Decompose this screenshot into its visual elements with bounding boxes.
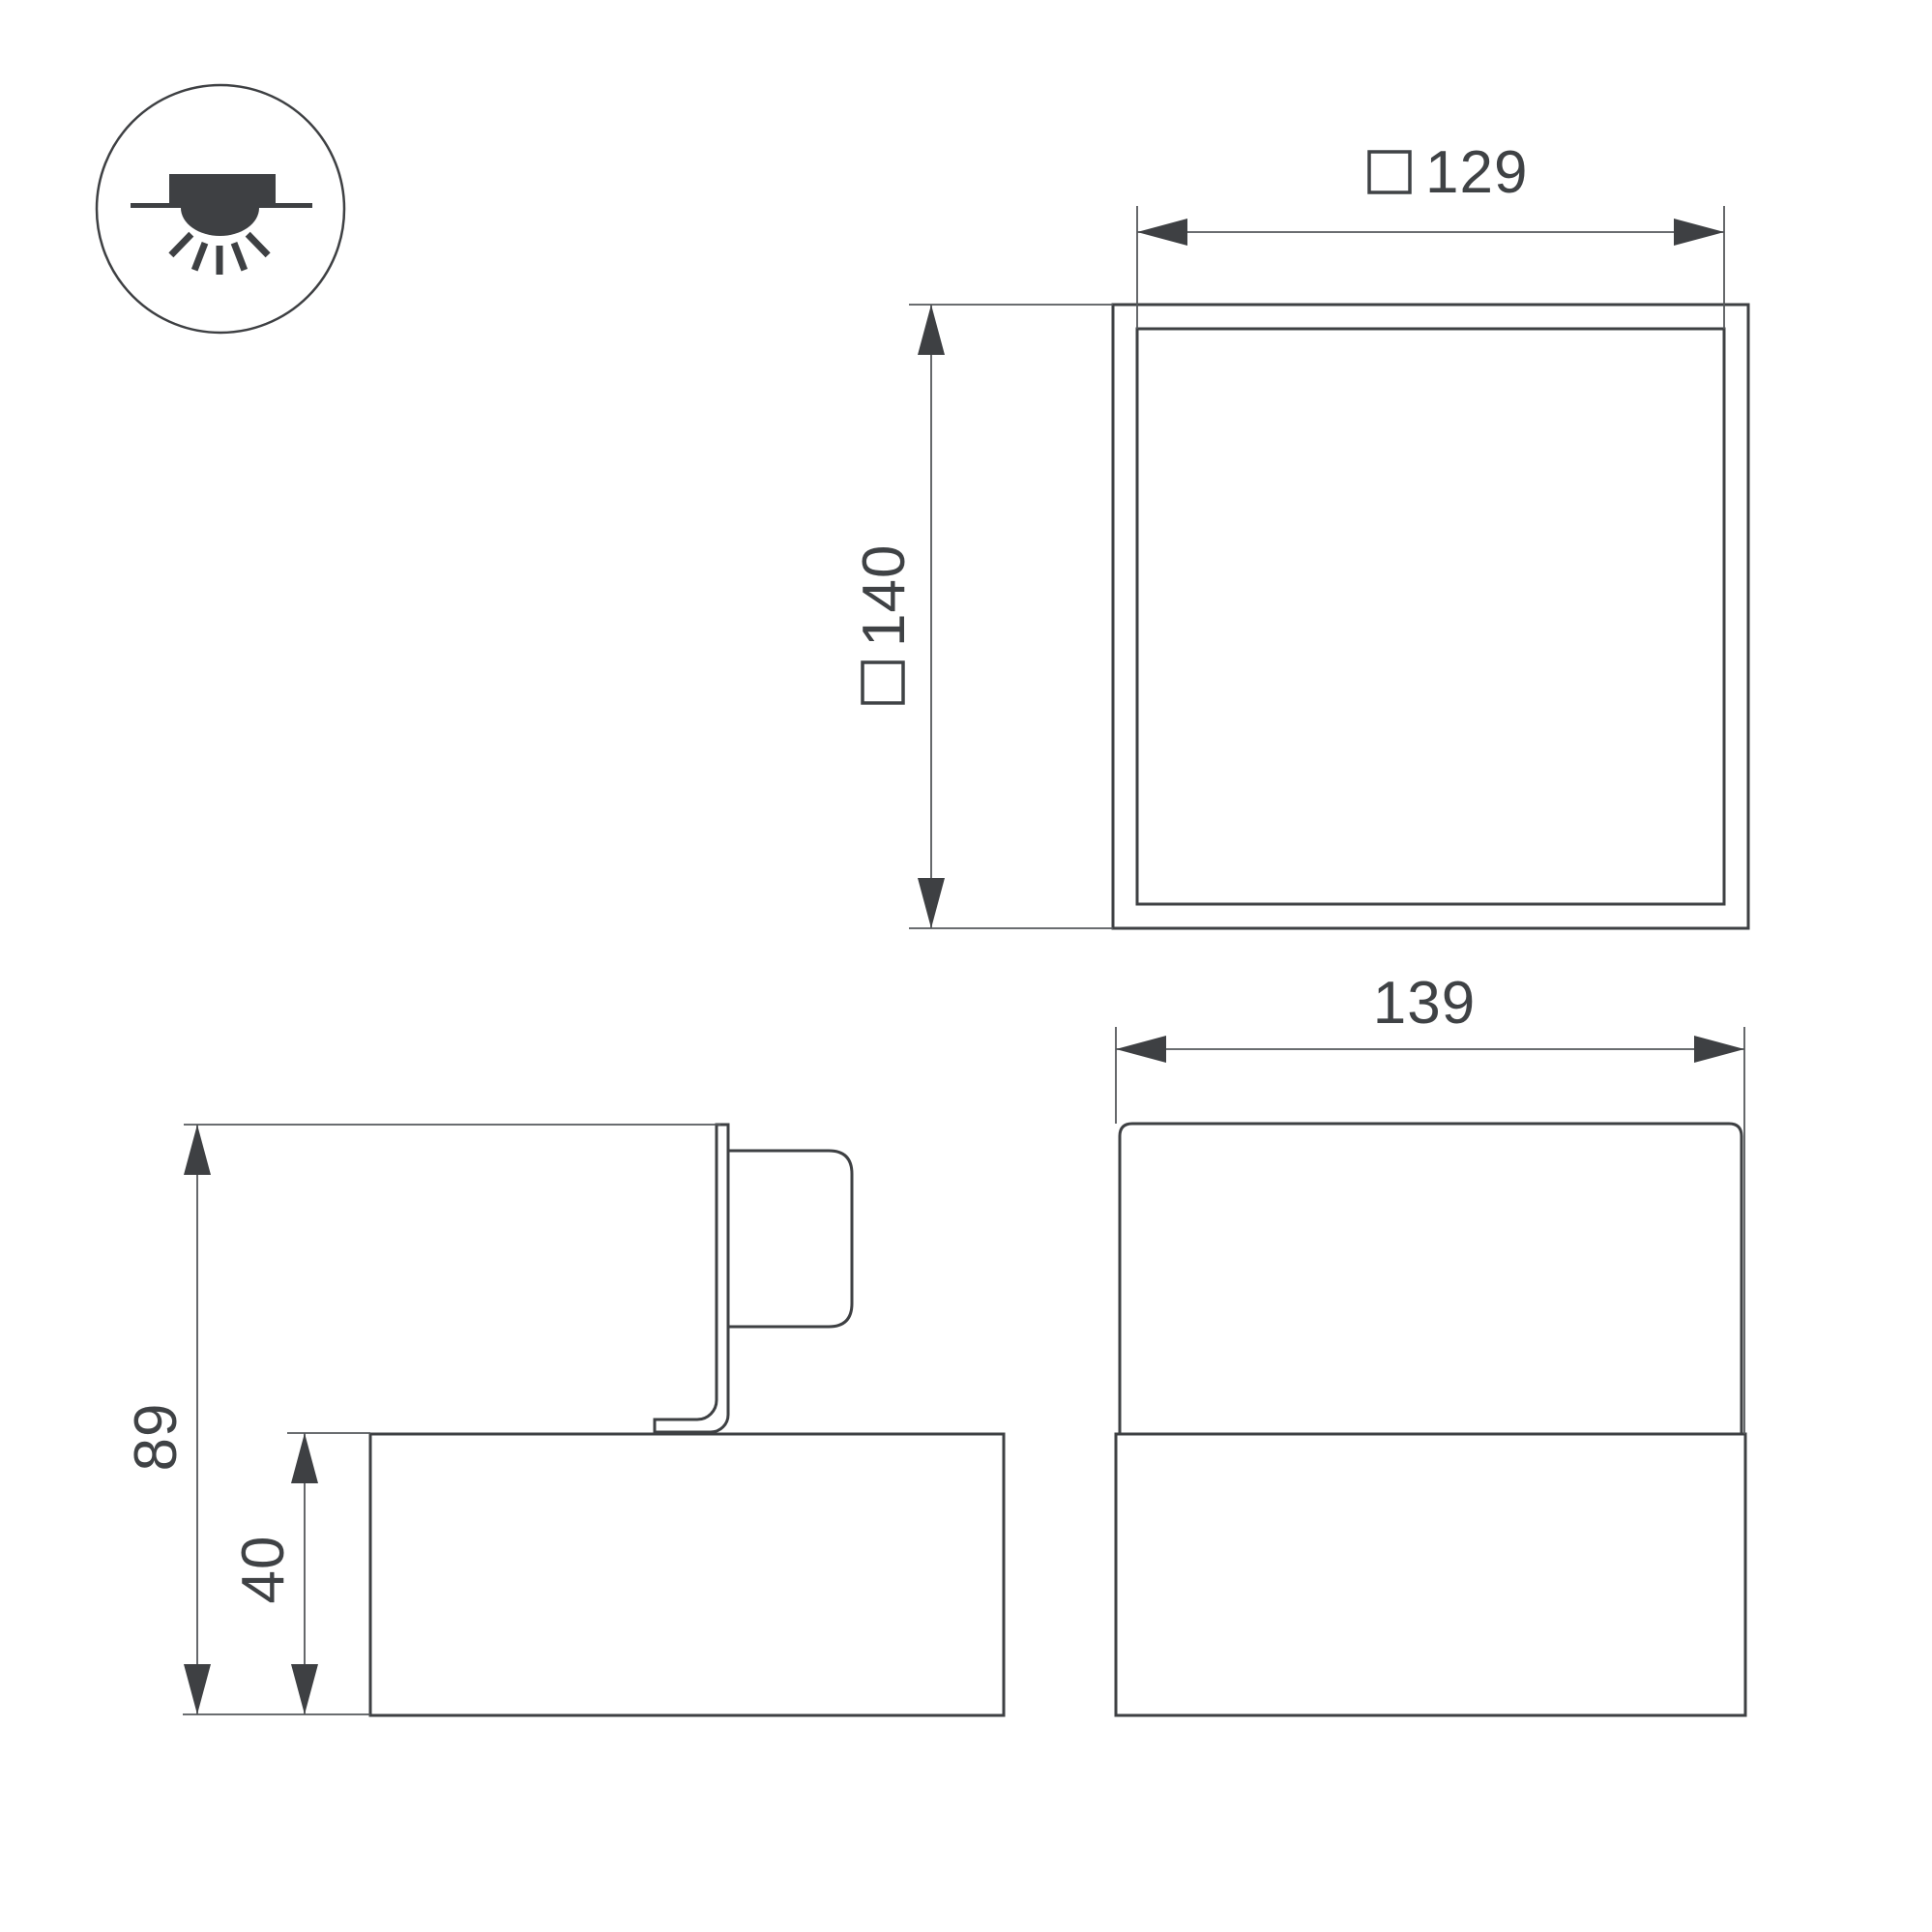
top-view-inner-square [1137,329,1724,904]
front-view-base [1116,1434,1745,1715]
side-view-mounting-bracket [655,1125,728,1432]
arrowhead-left [1137,219,1187,246]
arrowhead-up [291,1433,318,1483]
dim-label-89: 89 [123,1403,190,1472]
surface-ceiling-mount-light-icon [97,85,344,333]
icon-fixture-body [169,174,276,206]
dimension-89: 89 [123,1125,720,1714]
arrowhead-up [184,1125,211,1175]
square-symbol [863,662,903,703]
icon-lamp-dome [181,208,259,236]
dim-label-140: 140 [851,544,918,703]
dimension-40: 40 [230,1433,370,1714]
arrowhead-right [1694,1036,1744,1063]
dim-value: 129 [1425,139,1528,206]
dim-value: 89 [123,1403,190,1472]
arrowhead-down [184,1664,211,1714]
arrowhead-right [1674,219,1724,246]
square-symbol [1369,152,1410,192]
dim-label-40: 40 [230,1536,297,1604]
front-view: 139 [1116,970,1745,1715]
arrowhead-up [918,305,945,355]
arrowhead-left [1116,1036,1166,1063]
dim-label-129: 129 [1369,139,1528,206]
dimension-139: 139 [1116,970,1744,1434]
technical-drawing: 129 140 [0,0,1932,1932]
dimension-129: 129 [1137,139,1724,329]
front-view-diffuser [1120,1124,1742,1434]
dim-value: 40 [230,1536,297,1604]
arrowhead-down [918,878,945,928]
dimension-140: 140 [851,305,1113,928]
side-view-driver-box [728,1151,852,1327]
side-view-base [370,1434,1004,1715]
top-view-outer-square [1113,305,1748,928]
icon-ceiling-line [131,203,312,208]
drawing-canvas: 129 140 [0,0,1932,1932]
icon-light-rays [171,234,268,275]
side-view: 89 40 [123,1125,1004,1715]
arrowhead-down [291,1664,318,1714]
top-view: 129 140 [851,139,1748,928]
dim-label-139: 139 [1373,970,1476,1037]
dim-value: 140 [851,544,918,647]
